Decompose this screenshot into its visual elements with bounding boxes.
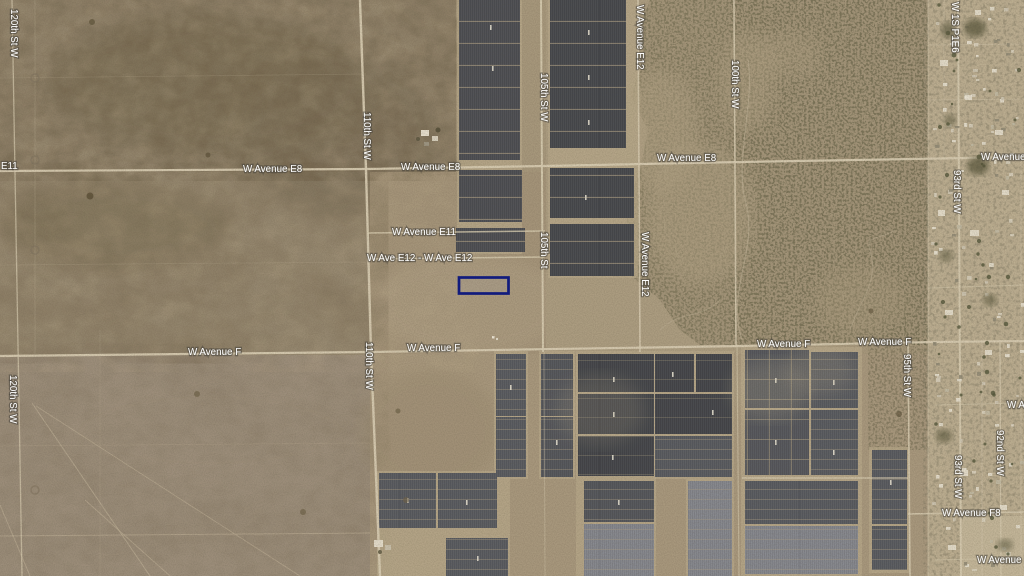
svg-text:W Avenue F8: W Avenue F8 [942, 508, 1001, 519]
svg-text:W Avenue F: W Avenue F [757, 339, 810, 350]
svg-text:93rd St W: 93rd St W [952, 455, 963, 499]
svg-text:92nd St W: 92nd St W [994, 430, 1005, 476]
svg-text:W Avenue E11: W Avenue E11 [392, 227, 456, 238]
svg-text:W Avenue E12: W Avenue E12 [639, 232, 650, 297]
svg-text:105th St W: 105th St W [538, 73, 549, 122]
svg-text:W Avenue F: W Avenue F [407, 343, 460, 354]
svg-text:W Avenue E8: W Avenue E8 [401, 162, 461, 173]
svg-text:120th St W: 120th St W [7, 375, 18, 424]
svg-text:E11: E11 [1, 161, 18, 172]
svg-text:W Av: W Av [1007, 400, 1024, 411]
svg-text:105th St: 105th St [538, 232, 549, 269]
svg-text:120th St W: 120th St W [8, 9, 19, 58]
svg-text:W 1S P1E6: W 1S P1E6 [949, 2, 960, 53]
svg-text:110th St W: 110th St W [363, 342, 374, 390]
svg-text:100th St W: 100th St W [729, 60, 740, 109]
svg-text:W Ave E12 - W Ave E12: W Ave E12 - W Ave E12 [367, 253, 472, 264]
svg-text:W Avenue F: W Avenue F [858, 337, 911, 348]
svg-text:W Avenue E8: W Avenue E8 [981, 152, 1024, 163]
svg-text:W Avenue E8: W Avenue E8 [657, 153, 717, 164]
svg-text:93rd St W: 93rd St W [951, 170, 962, 214]
svg-text:W Avenue E12: W Avenue E12 [634, 5, 645, 70]
svg-text:W Avenue E8: W Avenue E8 [243, 164, 303, 175]
svg-text:110th St W: 110th St W [361, 112, 372, 160]
svg-text:W Avenue F: W Avenue F [188, 347, 241, 358]
svg-text:W Avenue F: W Avenue F [977, 555, 1024, 566]
svg-text:95th St W: 95th St W [901, 354, 912, 398]
